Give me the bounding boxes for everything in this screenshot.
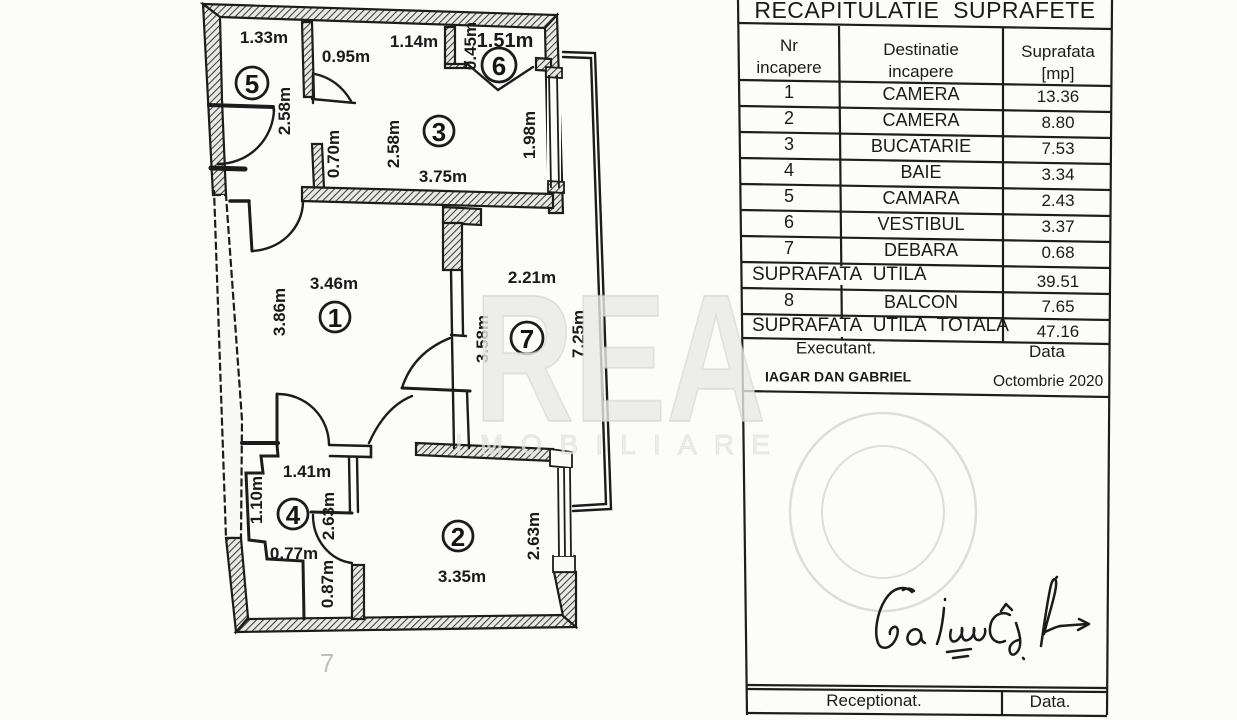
svg-text:8: 8 [784, 290, 794, 310]
svg-text:2.63m: 2.63m [319, 492, 338, 540]
svg-text:Suprafata: Suprafata [1021, 42, 1095, 61]
svg-text:3.34: 3.34 [1041, 165, 1074, 184]
svg-text:3.46m: 3.46m [310, 274, 358, 293]
svg-text:8.80: 8.80 [1041, 113, 1074, 132]
svg-text:0.87m: 0.87m [318, 560, 337, 608]
svg-text:47.16: 47.16 [1037, 322, 1080, 341]
svg-text:7.65: 7.65 [1041, 297, 1074, 316]
svg-text:RECAPITULATIE SUPRAFETE: RECAPITULATIE SUPRAFETE [754, 0, 1095, 23]
svg-text:4: 4 [286, 500, 301, 530]
svg-text:6: 6 [784, 212, 794, 232]
svg-text:3.86m: 3.86m [270, 288, 289, 336]
svg-text:2.43: 2.43 [1041, 191, 1074, 210]
svg-text:1.98m: 1.98m [520, 111, 539, 159]
svg-text:3.35m: 3.35m [438, 567, 486, 586]
svg-text:DEBARA: DEBARA [884, 240, 958, 260]
svg-text:SUPRAFATA UTILA: SUPRAFATA UTILA [752, 264, 927, 285]
svg-text:2.63m: 2.63m [524, 512, 543, 560]
svg-text:0.95m: 0.95m [322, 47, 370, 66]
svg-text:0.45m: 0.45m [461, 22, 480, 70]
svg-text:BALCON: BALCON [884, 292, 958, 312]
svg-text:0.70m: 0.70m [324, 130, 343, 178]
svg-text:CAMERA: CAMERA [882, 84, 959, 104]
svg-text:3.75m: 3.75m [419, 167, 467, 186]
svg-text:13.36: 13.36 [1037, 87, 1080, 106]
svg-text:3: 3 [784, 134, 794, 154]
svg-text:1.51m: 1.51m [477, 30, 534, 52]
svg-text:7.53: 7.53 [1041, 139, 1074, 158]
svg-text:1.33m: 1.33m [240, 28, 288, 47]
svg-text:7: 7 [784, 238, 794, 258]
svg-text:IAGAR DAN GABRIEL: IAGAR DAN GABRIEL [765, 368, 912, 384]
svg-text:Nr: Nr [780, 36, 798, 55]
svg-text:Destinatie: Destinatie [883, 40, 959, 59]
svg-text:[mp]: [mp] [1041, 64, 1074, 83]
svg-text:2.58m: 2.58m [275, 87, 294, 135]
svg-text:6: 6 [492, 51, 506, 81]
svg-text:1.14m: 1.14m [390, 32, 438, 51]
svg-text:2: 2 [451, 522, 465, 552]
svg-text:1: 1 [328, 303, 342, 333]
svg-text:1.10m: 1.10m [247, 476, 266, 524]
svg-text:BAIE: BAIE [900, 162, 941, 182]
svg-text:VESTIBUL: VESTIBUL [877, 214, 964, 234]
svg-text:incapere: incapere [756, 58, 821, 77]
svg-text:0.68: 0.68 [1041, 243, 1074, 262]
svg-text:1: 1 [784, 82, 794, 102]
svg-text:Data: Data [1029, 342, 1065, 361]
svg-text:7: 7 [320, 648, 334, 678]
svg-text:3: 3 [432, 117, 446, 147]
svg-text:Data.: Data. [1030, 692, 1071, 711]
svg-text:4: 4 [784, 160, 794, 180]
svg-text:2.58m: 2.58m [384, 120, 403, 168]
svg-text:5: 5 [245, 69, 259, 99]
svg-text:Executant.: Executant. [796, 339, 876, 358]
svg-text:Octombrie 2020: Octombrie 2020 [993, 373, 1104, 390]
svg-text:BUCATARIE: BUCATARIE [871, 136, 971, 156]
svg-text:CAMERA: CAMERA [882, 110, 959, 130]
svg-text:3.37: 3.37 [1041, 217, 1074, 236]
svg-text:5: 5 [784, 186, 794, 206]
svg-text:IMOBILIARE: IMOBILIARE [455, 429, 788, 460]
svg-text:SUPRAFATA UTILA TOTALA: SUPRAFATA UTILA TOTALA [752, 315, 1009, 336]
svg-text:1.41m: 1.41m [283, 462, 331, 481]
svg-text:Receptionat.: Receptionat. [826, 691, 921, 710]
svg-text:2: 2 [784, 108, 794, 128]
svg-text:0.77m: 0.77m [270, 544, 318, 563]
svg-text:CAMARA: CAMARA [882, 188, 959, 208]
svg-text:39.51: 39.51 [1037, 272, 1080, 291]
svg-text:incapere: incapere [888, 62, 953, 81]
